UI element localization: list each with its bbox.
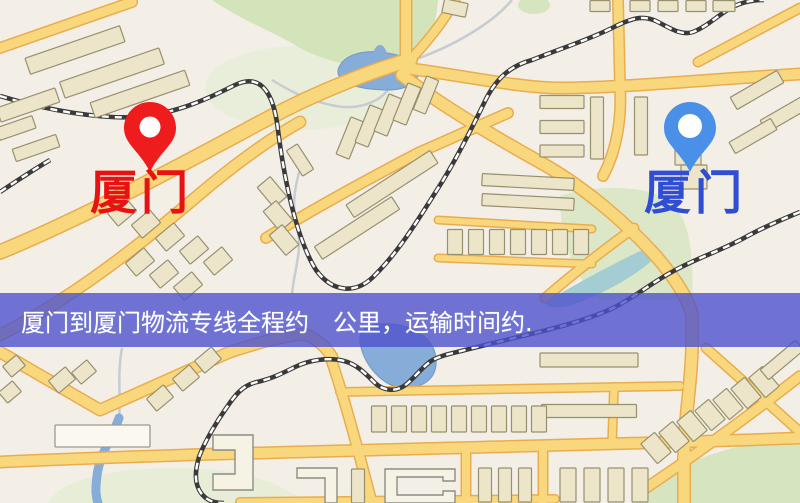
- building: [0, 381, 21, 403]
- building: [432, 406, 447, 432]
- destination-marker[interactable]: [664, 102, 716, 172]
- building: [532, 230, 547, 255]
- building: [590, 1, 610, 12]
- building: [472, 406, 487, 432]
- building: [591, 97, 604, 159]
- building: [540, 121, 584, 134]
- building: [469, 230, 484, 255]
- building: [632, 468, 648, 502]
- building: [372, 406, 387, 432]
- park: [518, 0, 550, 14]
- building: [635, 97, 648, 155]
- building: [412, 406, 427, 432]
- building: [12, 134, 60, 161]
- building: [55, 425, 150, 447]
- building: [203, 247, 232, 275]
- building: [686, 1, 706, 12]
- building: [553, 230, 568, 255]
- building: [149, 260, 178, 288]
- building: [658, 1, 678, 12]
- building: [512, 406, 527, 432]
- building: [179, 236, 208, 264]
- building: [608, 468, 624, 502]
- building: [511, 230, 526, 255]
- destination-label: 厦门: [644, 170, 746, 217]
- building: [286, 144, 313, 176]
- building: [540, 145, 584, 157]
- building: [542, 405, 637, 418]
- map-canvas: [0, 0, 800, 503]
- building: [448, 230, 463, 255]
- red-map-pin-icon: [124, 102, 176, 172]
- building: [574, 230, 589, 255]
- blue-map-pin-icon: [664, 102, 716, 172]
- origin-marker[interactable]: [124, 102, 176, 172]
- building: [392, 406, 407, 432]
- building: [385, 469, 455, 503]
- building: [492, 406, 507, 432]
- building: [540, 353, 638, 367]
- building: [72, 360, 97, 384]
- origin-label: 厦门: [90, 170, 192, 217]
- building: [729, 118, 777, 153]
- building: [352, 469, 365, 503]
- building: [540, 96, 584, 109]
- building: [713, 1, 735, 12]
- building: [532, 406, 547, 432]
- stream: [119, 348, 122, 420]
- building: [257, 177, 287, 208]
- building: [479, 468, 492, 502]
- road: [698, 8, 800, 62]
- building: [519, 468, 532, 502]
- building: [584, 468, 600, 502]
- route-info-text: 厦门到厦门物流专线全程约 公里，运输时间约.: [0, 303, 533, 338]
- building: [499, 468, 512, 502]
- building: [560, 468, 576, 502]
- building: [630, 1, 650, 12]
- logistics-route-map[interactable]: 厦门 厦门 厦门到厦门物流专线全程约 公里，运输时间约.: [0, 0, 800, 503]
- route-info-banner: 厦门到厦门物流专线全程约 公里，运输时间约.: [0, 293, 800, 347]
- building: [490, 230, 505, 255]
- building: [452, 406, 467, 432]
- building: [213, 435, 253, 490]
